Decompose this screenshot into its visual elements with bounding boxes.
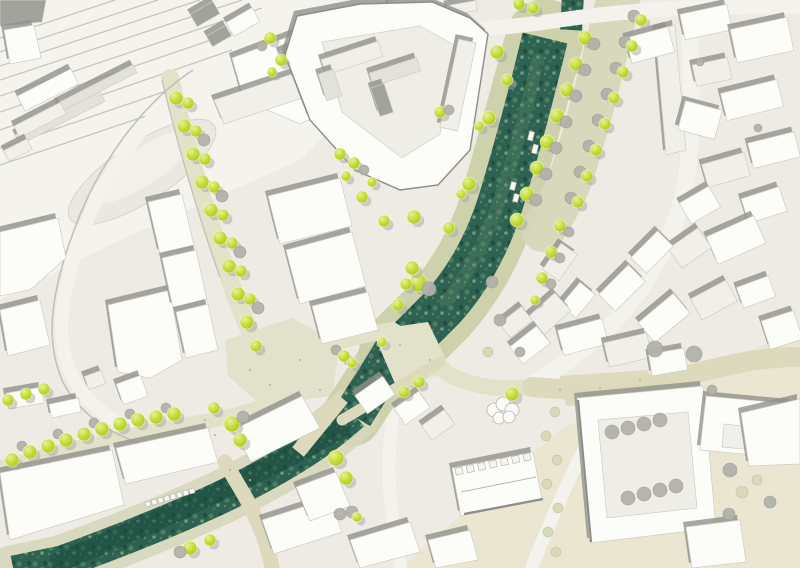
tree-lime	[378, 215, 390, 227]
tree-lime	[2, 394, 14, 406]
canal-pier	[189, 488, 195, 494]
tree-gray	[198, 134, 210, 146]
paving-dot	[559, 389, 561, 391]
canal-pier	[170, 494, 176, 500]
tree-lime	[208, 402, 220, 414]
tree-lime	[510, 213, 524, 227]
tree-pale	[541, 431, 551, 441]
tree-gray	[653, 483, 667, 497]
paving-dot	[229, 469, 231, 471]
tree-lime	[462, 177, 476, 191]
tree-lime	[617, 66, 629, 78]
tree-lime	[341, 171, 351, 181]
tree-lime	[626, 40, 638, 52]
tree-lime	[264, 32, 276, 44]
tree-lime	[167, 407, 181, 421]
tree-pale	[552, 455, 562, 465]
gable-roof-rib	[489, 460, 497, 468]
tree-gray	[422, 282, 436, 296]
tree-lime	[482, 111, 496, 125]
gable-roof-rib	[466, 465, 474, 473]
tree-lime	[590, 144, 602, 156]
tree-lime	[490, 45, 504, 59]
tree-gray	[550, 142, 562, 154]
tree-lime	[501, 74, 513, 86]
tree-lime	[149, 410, 163, 424]
canal-pier	[145, 501, 151, 507]
tree-lime	[599, 118, 611, 130]
tree-pale	[736, 486, 748, 498]
tree-gray	[560, 116, 572, 128]
tree-gray	[515, 347, 525, 357]
tree-lime	[572, 196, 584, 208]
canal-pier	[176, 492, 182, 498]
tree-lime	[235, 265, 247, 277]
tree-gray	[723, 508, 735, 520]
tree-gray	[579, 64, 591, 76]
building	[108, 290, 182, 378]
tree-gray	[564, 227, 574, 237]
tree-lime	[182, 97, 194, 109]
paving-dot	[399, 344, 401, 346]
tree-gray	[555, 253, 565, 263]
tree-pale	[542, 479, 552, 489]
tree-lime	[392, 299, 404, 311]
tree-lime	[513, 0, 525, 10]
tree-lime	[407, 210, 421, 224]
tree-gray	[621, 421, 635, 435]
tree-lime	[5, 453, 19, 467]
tree-lime	[186, 147, 200, 161]
tree-gray	[359, 165, 369, 175]
tree-gray	[486, 276, 498, 288]
tree-lime	[199, 153, 211, 165]
masterplan-svg	[0, 0, 800, 568]
tree-lime	[267, 67, 277, 77]
tree-gray	[216, 190, 228, 202]
tree-gray	[621, 491, 635, 505]
tree-lime	[405, 261, 419, 275]
tree-lime	[581, 170, 593, 182]
tree-lime	[328, 450, 344, 466]
tree-gray	[647, 341, 663, 357]
paving-dot	[249, 479, 251, 481]
gable-roof-rib	[512, 455, 520, 463]
tree-gray	[494, 314, 506, 326]
tree-lime	[635, 14, 647, 26]
tree-lime	[131, 413, 145, 427]
tree-lime	[334, 148, 346, 160]
tree-lime	[204, 534, 216, 546]
gable-roof-rib	[500, 458, 508, 466]
tree-gray	[696, 58, 704, 66]
tree-lime	[456, 189, 466, 199]
tree-gray	[637, 417, 651, 431]
tree-lime	[113, 417, 127, 431]
tree-gray	[546, 279, 556, 289]
masterplan-image: Riverside urban masterplan — aerial site…	[0, 0, 800, 568]
paving-dot	[599, 387, 601, 389]
paving-dot	[379, 349, 381, 351]
tree-lime	[250, 340, 262, 352]
tree-gray	[234, 246, 246, 258]
tree-gray	[764, 496, 776, 508]
tree-lime	[505, 387, 519, 401]
tree-lime	[352, 512, 362, 522]
tree-lime	[38, 383, 50, 395]
tree-lime	[169, 91, 183, 105]
paving-dot	[269, 384, 271, 386]
tree-lime	[231, 287, 245, 301]
canal-pier	[164, 495, 170, 501]
tree-gray	[237, 411, 249, 423]
tree-pale	[483, 347, 493, 357]
gable-roof-rib	[523, 453, 531, 461]
tree-gray	[252, 302, 264, 314]
tree-lime	[77, 427, 91, 441]
tree-gray	[540, 168, 552, 180]
tree-lime	[204, 203, 218, 217]
canal-pier	[158, 497, 164, 503]
paving-dot	[319, 389, 321, 391]
tree-gray	[588, 38, 600, 50]
tree-gray	[707, 385, 717, 395]
paving-dot	[429, 359, 431, 361]
tree-lime	[275, 54, 287, 66]
tree-lime	[41, 439, 55, 453]
tree-gray	[570, 90, 582, 102]
tree-lime	[213, 231, 227, 245]
paving-dot	[214, 434, 216, 436]
paving-dot	[249, 369, 251, 371]
tree-lime	[530, 295, 540, 305]
tree-gray	[605, 425, 619, 439]
building	[686, 520, 746, 568]
tree-lime	[20, 388, 32, 400]
tree-lime	[233, 433, 247, 447]
canal-pier	[183, 490, 189, 496]
tree-lime	[398, 386, 410, 398]
tree-gray	[686, 346, 702, 362]
tree-lime	[474, 121, 484, 131]
tree-gray	[530, 194, 542, 206]
building	[4, 25, 41, 64]
tree-lime	[347, 358, 357, 368]
tree-lime	[413, 376, 425, 388]
scalloped-canopy	[503, 411, 515, 423]
tree-gray	[334, 508, 346, 520]
tree-gray	[174, 546, 186, 558]
paving-dot	[204, 419, 206, 421]
tree-pale	[551, 547, 561, 557]
tree-lime	[177, 119, 191, 133]
tree-gray	[723, 463, 737, 477]
paving-dot	[299, 359, 301, 361]
gable-roof-rib	[455, 467, 463, 475]
tree-gray	[444, 105, 454, 115]
tree-lime	[608, 92, 620, 104]
tree-lime	[348, 157, 360, 169]
tree-lime	[377, 337, 387, 347]
tree-lime	[240, 315, 254, 329]
tree-gray	[754, 124, 762, 132]
tree-lime	[217, 209, 229, 221]
tree-gray	[637, 487, 651, 501]
tree-lime	[339, 471, 353, 485]
tree-gray	[257, 41, 267, 51]
tree-lime	[59, 433, 73, 447]
tree-gray	[653, 413, 667, 427]
paving-dot	[639, 379, 641, 381]
tree-lime	[527, 2, 539, 14]
tree-lime	[400, 278, 412, 290]
tree-pale	[752, 475, 762, 485]
tree-lime	[222, 259, 236, 273]
canal-pier	[151, 499, 157, 505]
tree-gray	[669, 479, 683, 493]
tree-lime	[23, 445, 37, 459]
tree-lime	[95, 422, 109, 436]
tree-pale	[553, 503, 563, 513]
tree-lime	[443, 222, 455, 234]
tree-lime	[195, 175, 209, 189]
gable-roof-rib	[478, 462, 486, 470]
tree-lime	[356, 191, 368, 203]
tree-pale	[543, 527, 553, 537]
tree-pale	[550, 407, 560, 417]
tree-lime	[367, 177, 377, 187]
